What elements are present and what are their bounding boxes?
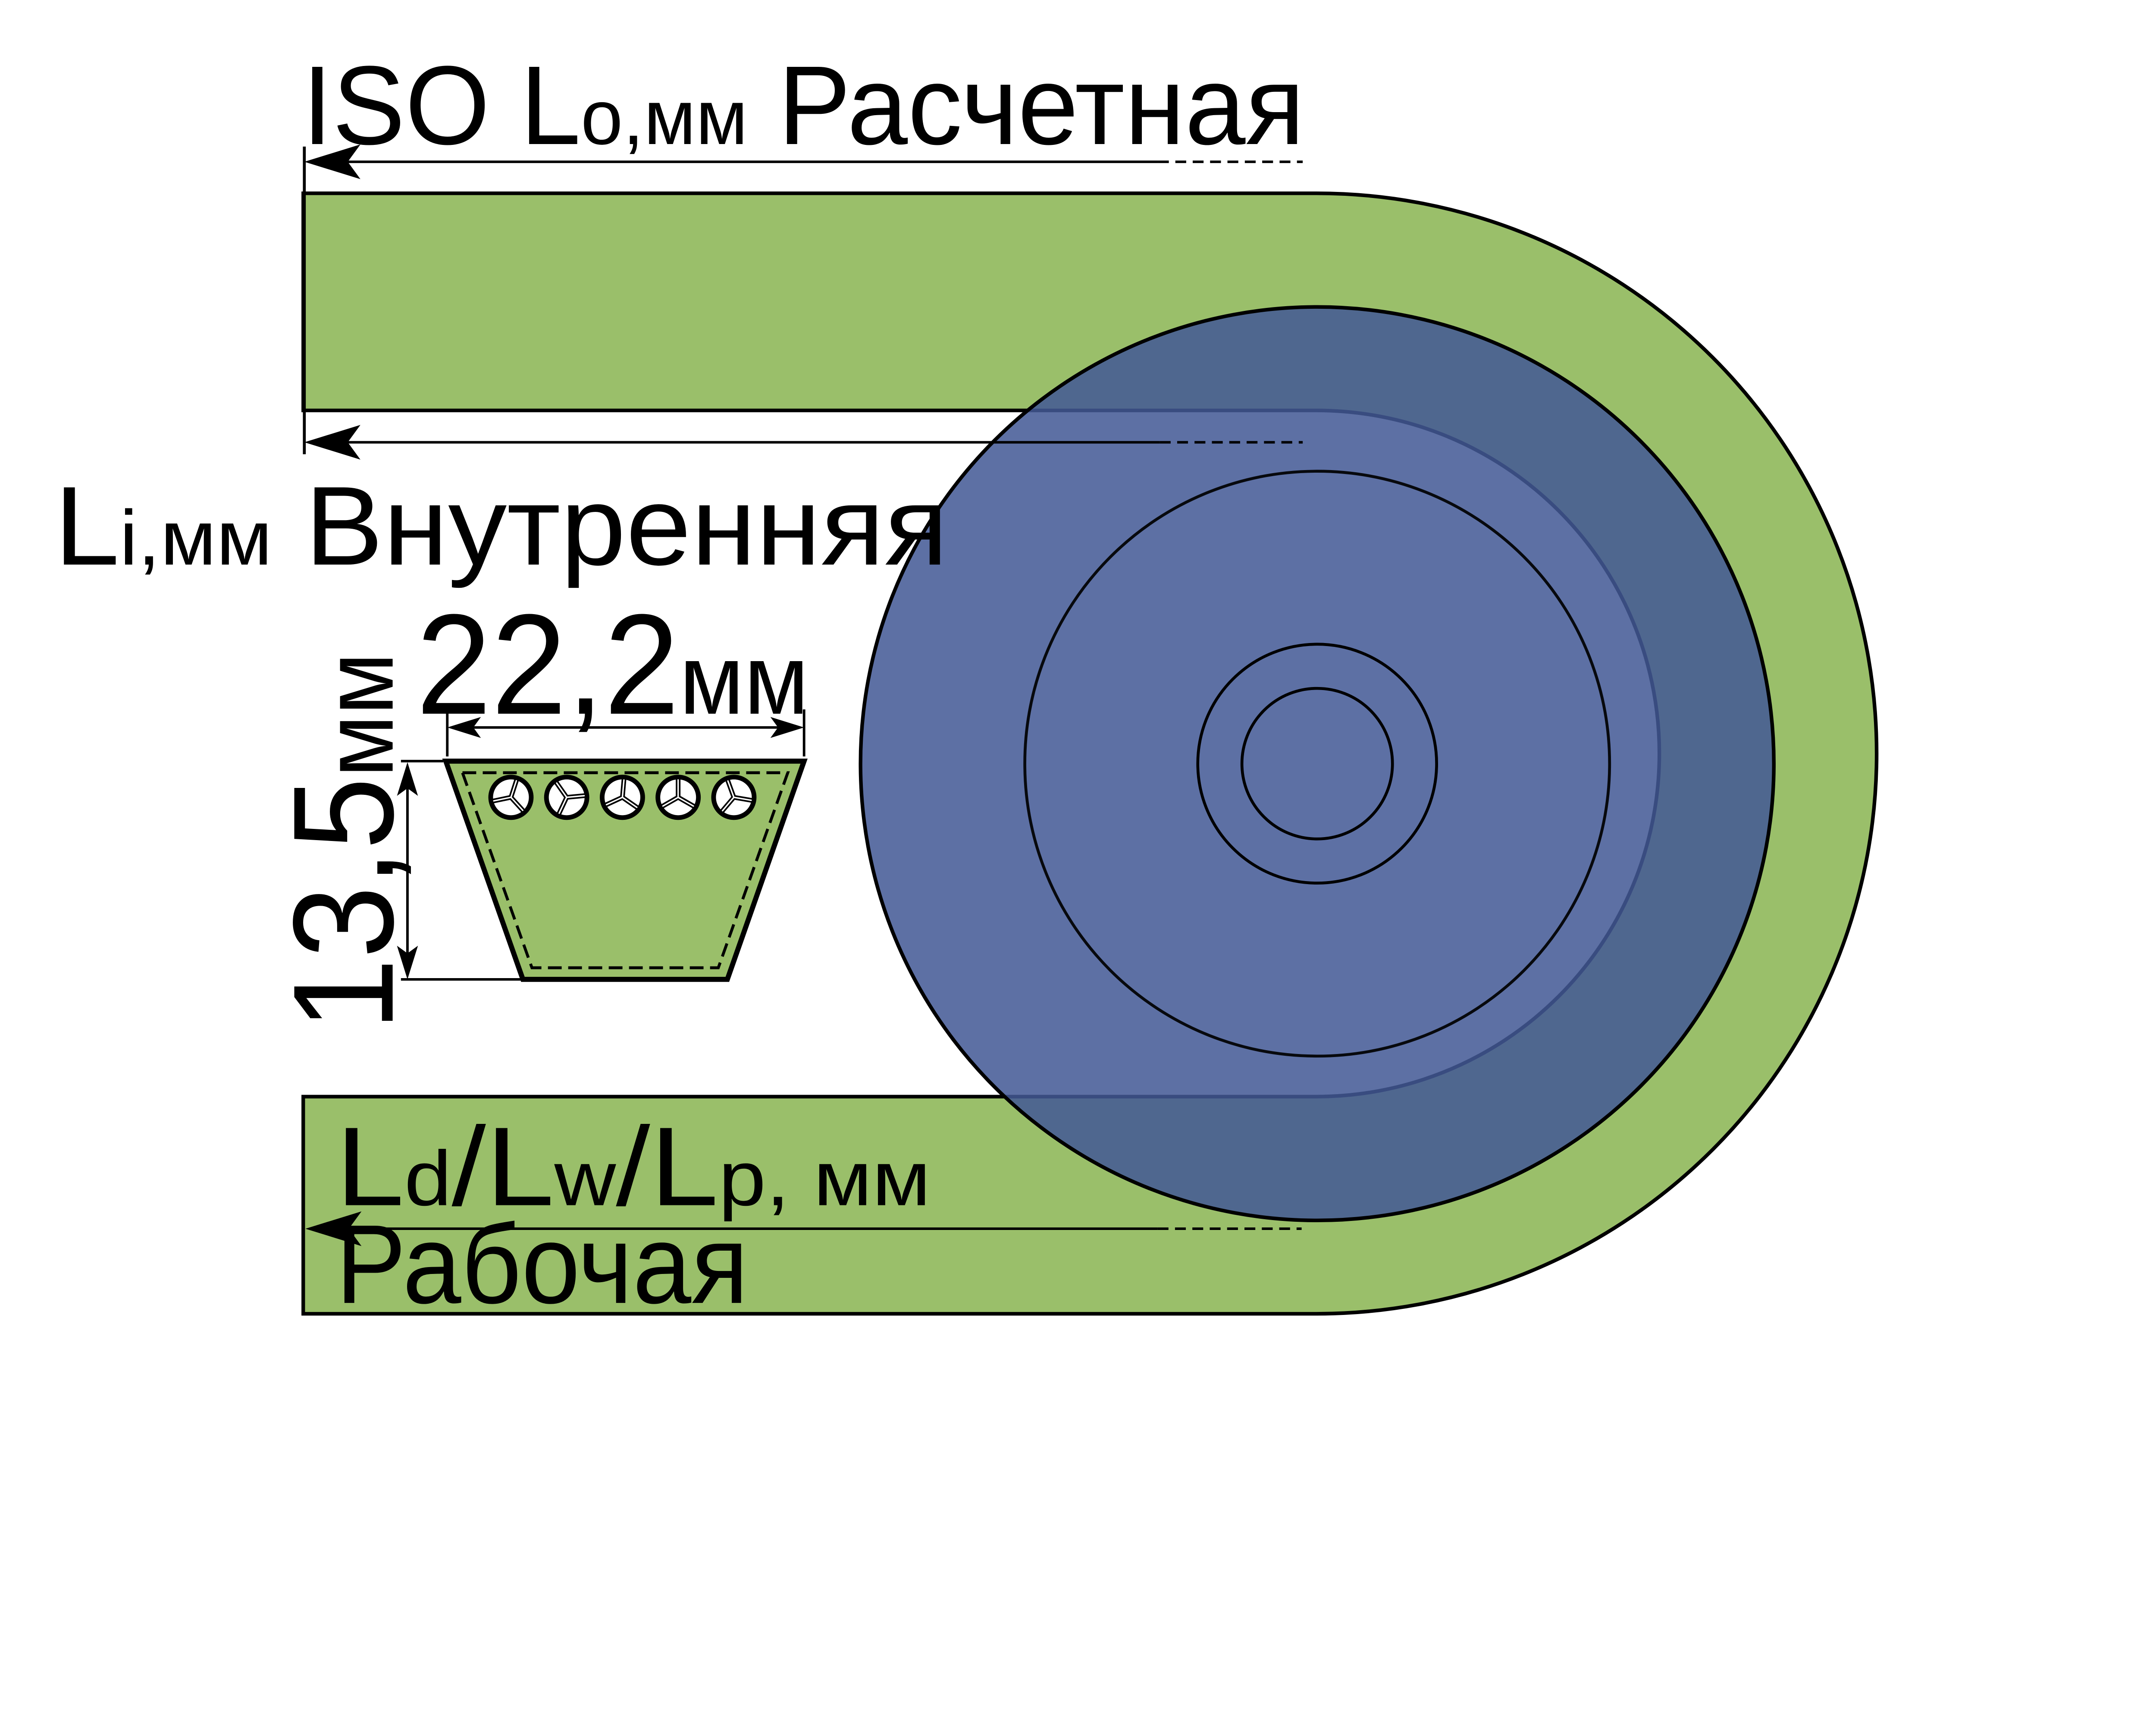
- working-length-caption: Рабочая: [336, 1202, 749, 1327]
- cord-circle: [658, 777, 699, 818]
- cord-circle: [491, 776, 531, 818]
- iso-length-label: ISO Lo,мм Расчетная: [302, 43, 1305, 168]
- belt-length-diagram-page: 22,2мм 13,5мм ISO Lo,мм Расчетная Li,мм …: [0, 0, 2156, 1437]
- cord-circle: [602, 777, 642, 818]
- belt-length-diagram: 22,2мм 13,5мм ISO Lo,мм Расчетная Li,мм …: [0, 0, 2156, 1437]
- cord-circle: [714, 776, 754, 818]
- pulley-disc: [861, 307, 1774, 1220]
